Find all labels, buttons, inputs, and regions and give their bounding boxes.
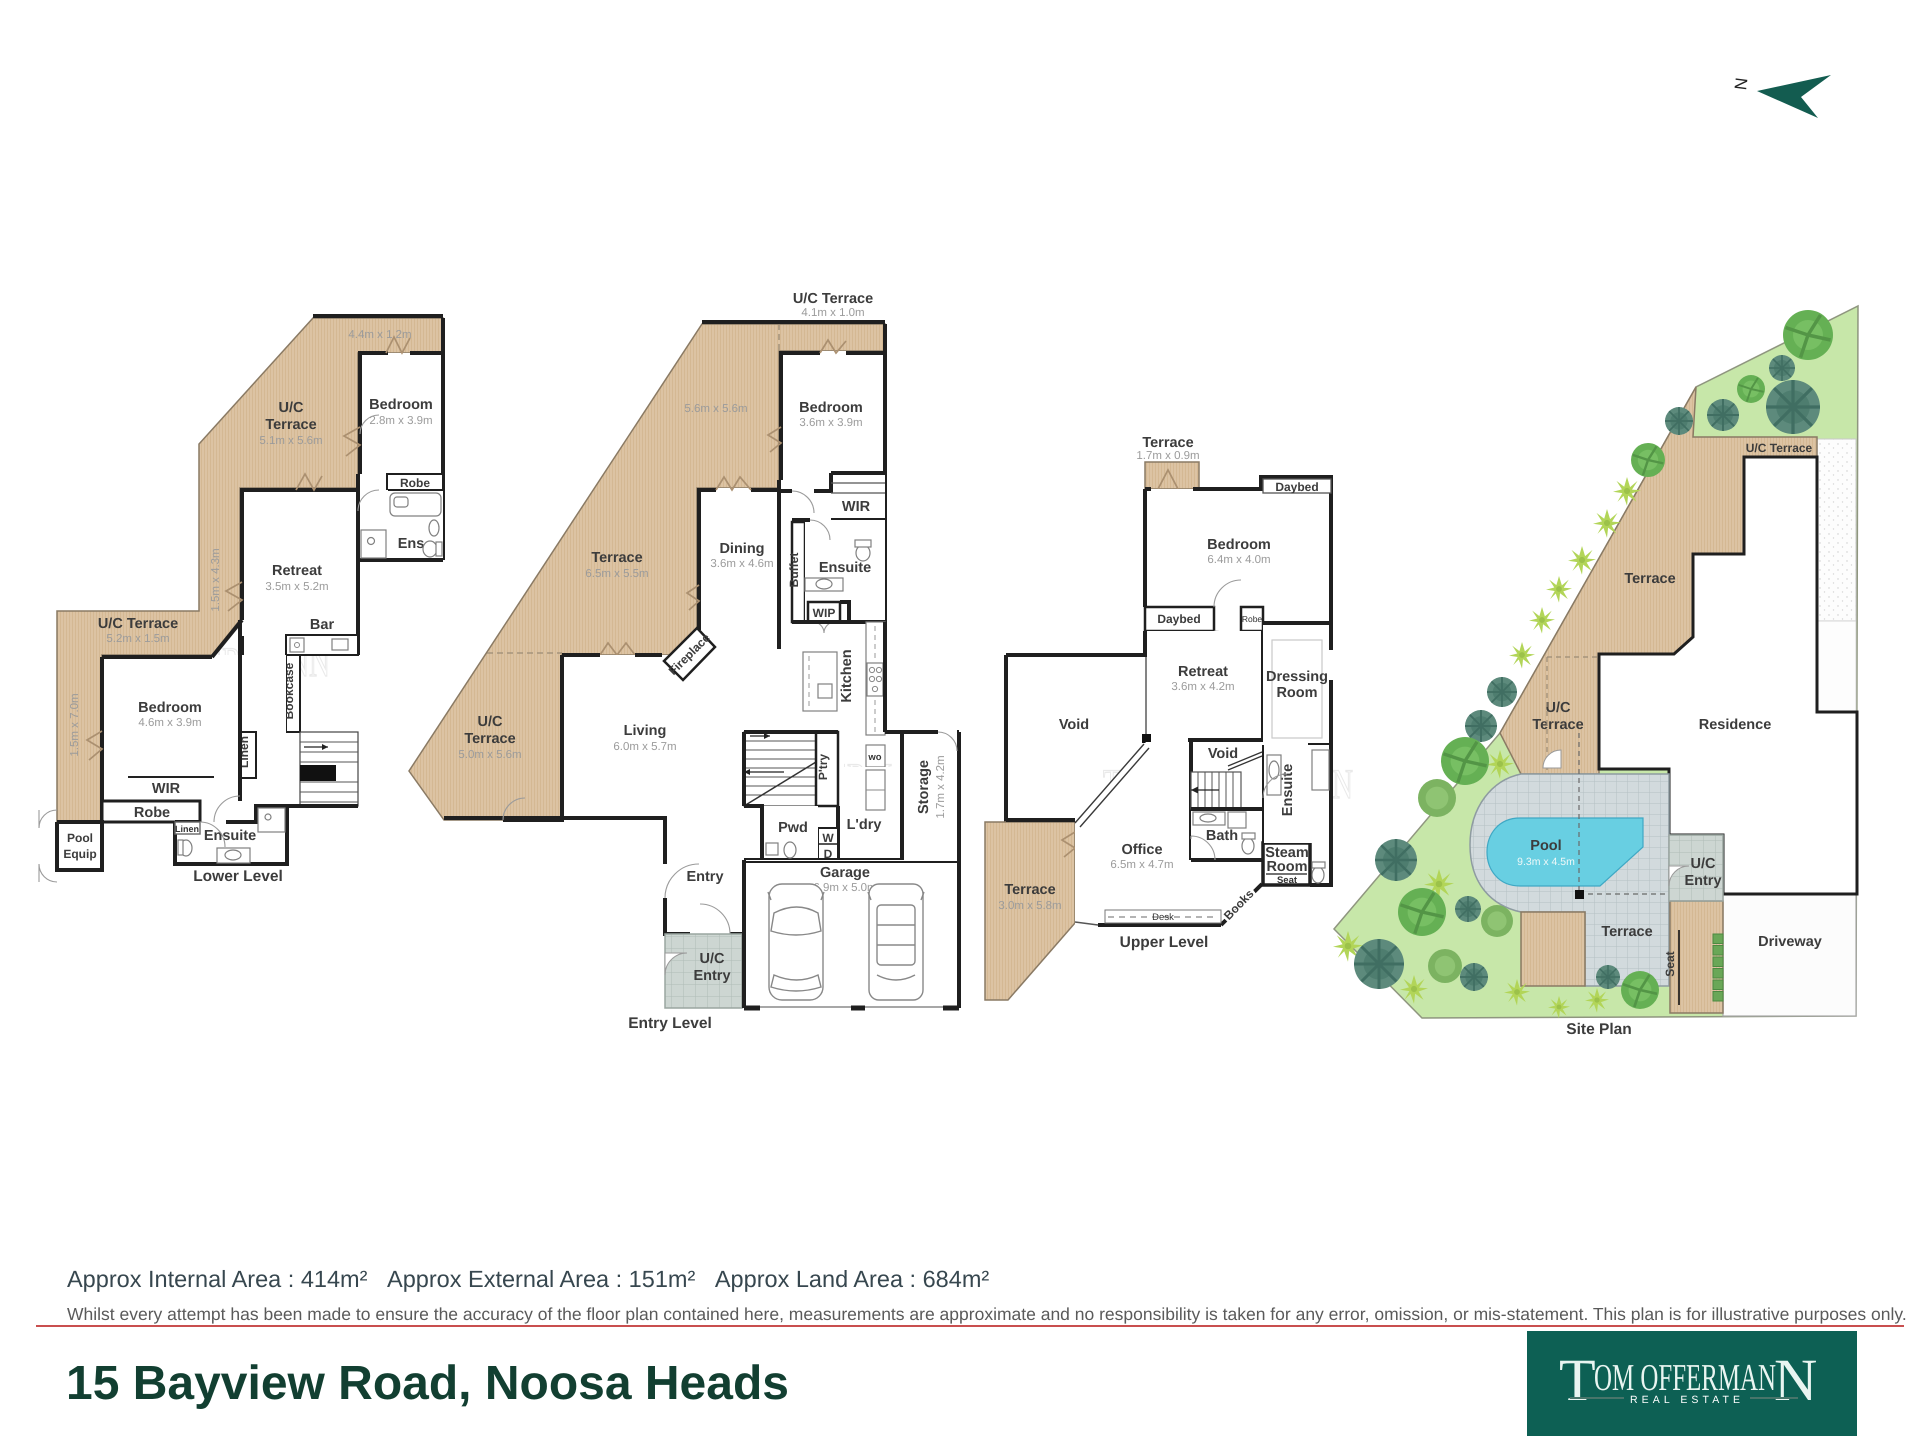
svg-text:Robe: Robe [1242,614,1263,624]
svg-text:1.5m x 4.3m: 1.5m x 4.3m [210,548,222,611]
svg-text:Upper Level: Upper Level [1120,934,1209,951]
svg-text:Robe: Robe [134,805,170,821]
svg-text:Desk: Desk [1152,912,1174,923]
svg-text:Terrace: Terrace [464,731,515,747]
svg-text:Room: Room [1276,685,1317,701]
svg-text:Bar: Bar [310,617,335,633]
svg-text:Terrace: Terrace [1624,571,1675,587]
svg-text:Void: Void [1208,746,1238,762]
svg-text:5.1m x 5.6m: 5.1m x 5.6m [259,435,322,447]
svg-text:1.7m x 0.9m: 1.7m x 0.9m [1136,450,1199,462]
svg-text:5.0m x 5.6m: 5.0m x 5.6m [458,749,521,761]
svg-text:Driveway: Driveway [1758,934,1822,950]
svg-text:Kitchen: Kitchen [839,649,855,702]
svg-text:Terrace: Terrace [1142,435,1193,451]
svg-text:3.6m x 4.6m: 3.6m x 4.6m [710,558,773,570]
svg-text:WIR: WIR [152,781,181,797]
svg-text:U/C: U/C [279,400,305,416]
svg-text:Bedroom: Bedroom [1207,537,1271,553]
svg-text:6.5m x 4.7m: 6.5m x 4.7m [1110,859,1173,871]
svg-text:U/C Terrace: U/C Terrace [98,616,178,632]
svg-text:Bedroom: Bedroom [369,397,433,413]
svg-text:N: N [1731,77,1751,92]
svg-text:Bath: Bath [1206,828,1238,844]
svg-text:Daybed: Daybed [1157,612,1200,626]
svg-text:Bedroom: Bedroom [799,400,863,416]
svg-text:Pwd: Pwd [778,820,808,836]
svg-text:3.0m x 5.8m: 3.0m x 5.8m [998,900,1061,912]
svg-text:Terrace: Terrace [1004,882,1055,898]
svg-text:Ens: Ens [398,536,425,552]
svg-text:Dining: Dining [719,541,764,557]
svg-text:9.3m x 4.5m: 9.3m x 4.5m [1517,856,1575,868]
svg-text:Pool: Pool [67,831,93,845]
svg-text:U/C: U/C [700,951,726,967]
svg-text:WIR: WIR [842,499,871,515]
svg-text:Void: Void [1059,717,1089,733]
svg-text:Retreat: Retreat [272,563,322,579]
svg-text:W: W [822,831,834,845]
svg-text:Linen: Linen [175,824,199,834]
svg-text:REAL ESTATE: REAL ESTATE [1630,1394,1744,1406]
svg-text:Robe: Robe [400,476,430,490]
svg-text:Bedroom: Bedroom [138,700,202,716]
svg-text:Ensuite: Ensuite [204,828,256,844]
svg-text:U/C Terrace: U/C Terrace [793,291,873,307]
svg-text:Whilst every attempt has been: Whilst every attempt has been made to en… [67,1304,1907,1324]
svg-text:3.6m x 3.9m: 3.6m x 3.9m [799,417,862,429]
svg-text:6.5m x 5.5m: 6.5m x 5.5m [585,568,648,580]
svg-text:Ensuite: Ensuite [819,560,871,576]
svg-text:Entry: Entry [686,869,723,885]
svg-text:N: N [1774,1347,1817,1413]
svg-text:Daybed: Daybed [1275,480,1318,494]
svg-text:Residence: Residence [1699,717,1772,733]
svg-text:1.7m x 4.2m: 1.7m x 4.2m [935,755,947,818]
svg-text:U/C: U/C [1546,700,1572,716]
svg-text:Ensuite: Ensuite [1280,764,1296,816]
svg-text:Pool: Pool [1530,838,1561,854]
svg-text:Terrace: Terrace [265,417,316,433]
svg-text:Storage: Storage [916,760,932,814]
svg-text:U/C: U/C [478,714,504,730]
svg-text:WIP: WIP [813,606,836,620]
svg-text:Garage: Garage [820,865,870,881]
svg-text:Entry: Entry [1684,873,1721,889]
svg-text:Terrace: Terrace [591,550,642,566]
svg-text:Buffet: Buffet [787,553,801,588]
svg-text:Living: Living [624,723,667,739]
svg-text:1.5m x 7.0m: 1.5m x 7.0m [69,693,81,756]
svg-text:3.5m x 5.2m: 3.5m x 5.2m [265,581,328,593]
svg-text:Entry: Entry [693,968,730,984]
svg-text:5.2m x 1.5m: 5.2m x 1.5m [106,633,169,645]
svg-text:Room: Room [1266,859,1307,875]
svg-text:Seat: Seat [1277,875,1298,886]
svg-text:5.6m x 5.6m: 5.6m x 5.6m [684,403,747,415]
svg-text:2.8m x 3.9m: 2.8m x 3.9m [369,415,432,427]
svg-text:U/C: U/C [1691,856,1717,872]
svg-text:Dressing: Dressing [1266,669,1328,685]
svg-text:Site Plan: Site Plan [1566,1021,1631,1038]
svg-text:P'try: P'try [816,754,830,781]
svg-text:15 Bayview Road, Noosa Heads: 15 Bayview Road, Noosa Heads [66,1357,789,1410]
svg-text:Terrace: Terrace [1532,717,1583,733]
svg-text:6.4m x 4.0m: 6.4m x 4.0m [1207,554,1270,566]
svg-text:OM OFFERMAN: OM OFFERMAN [1594,1357,1776,1399]
svg-text:U/C Terrace: U/C Terrace [1746,441,1813,455]
svg-text:4.4m x 1.2m: 4.4m x 1.2m [348,329,411,341]
svg-text:Equip: Equip [63,847,96,861]
svg-text:L'dry: L'dry [847,817,882,833]
svg-text:Retreat: Retreat [1178,664,1228,680]
svg-text:wo: wo [867,752,881,763]
svg-text:Lower Level: Lower Level [193,868,283,885]
svg-text:Approx Internal Area : 414m²: Approx Internal Area : 414m² Approx Exte… [67,1266,989,1292]
svg-text:6.0m x 5.7m: 6.0m x 5.7m [613,741,676,753]
svg-text:4.6m x 3.9m: 4.6m x 3.9m [138,717,201,729]
svg-text:T: T [1559,1347,1596,1413]
svg-text:3.6m x 4.2m: 3.6m x 4.2m [1171,681,1234,693]
svg-text:4.1m x 1.0m: 4.1m x 1.0m [801,307,864,319]
svg-text:Office: Office [1121,842,1162,858]
svg-text:Terrace: Terrace [1601,924,1652,940]
svg-text:Seat: Seat [1663,951,1677,976]
svg-text:Entry Level: Entry Level [628,1015,712,1032]
